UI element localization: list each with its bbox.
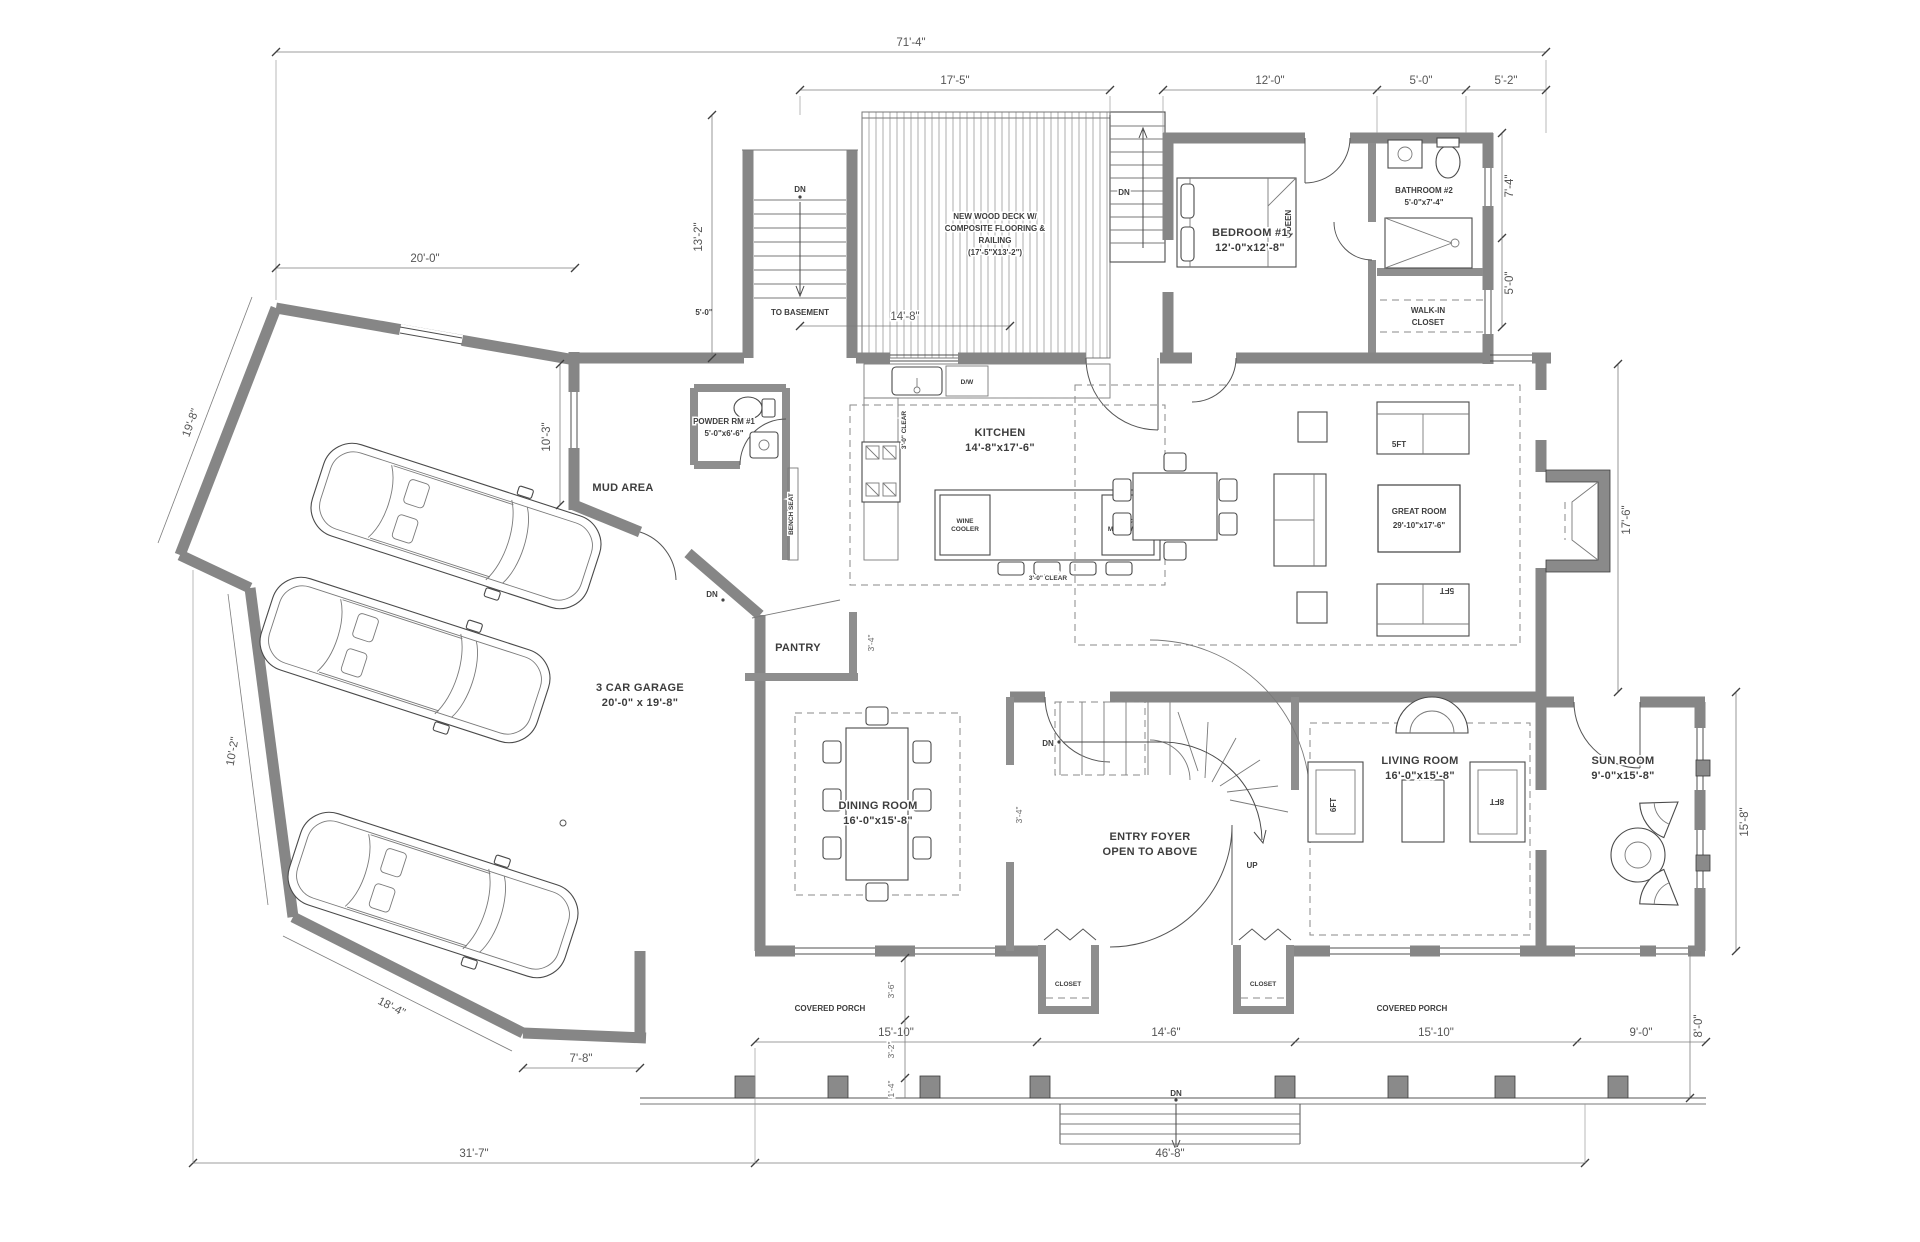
- opening-dim: 3'-4": [1014, 807, 1024, 824]
- garage-entry-dn: DN: [706, 590, 718, 599]
- powder-size: 5'-0"x6'-6": [705, 429, 744, 438]
- svg-text:COMPOSITE FLOORING &: COMPOSITE FLOORING &: [945, 224, 1046, 233]
- foyer-l1: ENTRY FOYER: [1110, 831, 1191, 843]
- dim-garage-door: 18'-4": [376, 995, 408, 1019]
- foyer-dn-label: DN: [1042, 739, 1054, 748]
- dim-porch-left: 15'-10": [878, 1027, 914, 1039]
- pantry-name: PANTRY: [775, 642, 821, 654]
- bedroom1-size: 12'-0"x12'-8": [1215, 242, 1285, 254]
- garage: 3 CAR GARAGE 20'-0" x 19'-8": [249, 426, 684, 995]
- dim-garage-lower: 10'-2": [225, 736, 242, 767]
- clear-dim-h: 3'-0" CLEAR: [1029, 575, 1068, 582]
- dim-garage-side: 19'-8": [181, 407, 202, 439]
- dim-great-h: 17'-6": [1621, 505, 1633, 534]
- living-room: 6FT 8FT LIVING ROOM 16'-0"x15'-8": [1308, 697, 1530, 935]
- dim-closet-h: 5'-0": [1504, 272, 1516, 295]
- garage-size: 20'-0" x 19'-8": [602, 697, 678, 709]
- dim-porch-depth: 8'-0": [1693, 1015, 1705, 1038]
- bedroom1-name: BEDROOM #1: [1212, 227, 1288, 239]
- dim-overall-top: 71'-4": [896, 37, 925, 49]
- svg-text:(17'-5"X13'-2"): (17'-5"X13'-2"): [968, 248, 1022, 257]
- garage-car-3: [277, 795, 589, 995]
- dim-deck-w: 17'-5": [940, 75, 969, 87]
- dim-porch-ext: 9'-0": [1630, 1027, 1653, 1039]
- porches: COVERED PORCH COVERED PORCH CLOSET CLOSE…: [640, 981, 1706, 1150]
- dim-garage-top: 20'-0": [410, 253, 439, 265]
- walkin-l1: WALK-IN: [1411, 306, 1445, 315]
- mud-area-name: MUD AREA: [592, 482, 653, 494]
- sun-size: 9'-0"x15'-8": [1591, 770, 1654, 782]
- foyer-up-label: UP: [1246, 861, 1258, 870]
- sofa-6ft-label: 6FT: [1329, 798, 1338, 812]
- floor-plan-page: DN DN NEW WOOD DECK W/ COMPOSITE FLOORIN…: [0, 0, 1920, 1242]
- closet-left-name: CLOSET: [1055, 981, 1081, 988]
- wine-cooler-l1: WINE: [957, 518, 975, 525]
- foyer-l2: OPEN TO ABOVE: [1103, 846, 1198, 858]
- dim-offset-r: 5'-2": [1495, 75, 1518, 87]
- bedroom-wing: QUEEN BEDROOM #1 12'-0"x12'-8" BATHROOM …: [1177, 138, 1483, 332]
- dim-3-6: 3'-6": [886, 982, 896, 999]
- garage-name: 3 CAR GARAGE: [596, 682, 684, 694]
- dining-room: DINING ROOM 16'-0"x15'-8" 3'-4": [795, 707, 1024, 901]
- dim-corner: 7'-8": [570, 1053, 593, 1065]
- living-size: 16'-0"x15'-8": [1385, 770, 1455, 782]
- powder-name: POWDER RM #1: [693, 417, 755, 426]
- dim-porch-right: 15'-10": [1418, 1027, 1454, 1039]
- bench-seat-label: BENCH SEAT: [788, 493, 795, 535]
- basement-stair-dn-label: DN: [794, 185, 806, 194]
- dim-deck-h: 13'-2": [693, 222, 705, 251]
- kitchen: D/W WINE COOLER U.C. MICROWAVE KITCHEN 1…: [850, 364, 1165, 585]
- deck-stair-dn-label: DN: [1118, 188, 1130, 197]
- deck-stair: DN: [1110, 112, 1165, 262]
- dim-bedroom-w: 12'-0": [1255, 75, 1284, 87]
- dim-1-4: 1'-4": [886, 1081, 896, 1098]
- great-room-size: 29'-10"x17'-6": [1393, 521, 1446, 530]
- porch-right-name: COVERED PORCH: [1377, 1004, 1448, 1013]
- stair-width-dim: 5'-0": [695, 308, 712, 317]
- wine-cooler-l2: COOLER: [951, 526, 979, 533]
- sofa-5ft-top: 5FT: [1392, 440, 1406, 449]
- curved-stair: [1150, 640, 1310, 812]
- walkin-l2: CLOSET: [1412, 318, 1445, 327]
- dim-front-center: 14'-6": [1151, 1027, 1180, 1039]
- living-name: LIVING ROOM: [1381, 755, 1458, 767]
- sofa-8ft-label: 8FT: [1490, 797, 1504, 806]
- dim-sun-h: 15'-8": [1739, 807, 1751, 836]
- steps-dn-label: DN: [1170, 1089, 1182, 1098]
- dining-name: DINING ROOM: [838, 800, 917, 812]
- dim-deck-lower: 14'-8": [890, 311, 919, 323]
- pantry-clear-dim: 3'-4": [866, 635, 876, 652]
- dim-3-2: 3'-2": [886, 1042, 896, 1059]
- fireplace: [1546, 470, 1610, 572]
- bathroom2-size: 5'-0"x7'-4": [1405, 198, 1444, 207]
- to-basement-label: TO BASEMENT: [771, 308, 829, 317]
- dining-size: 16'-0"x15'-8": [843, 815, 913, 827]
- sun-room: SUN ROOM 9'-0"x15'-8": [1591, 755, 1690, 922]
- sun-name: SUN ROOM: [1592, 755, 1655, 767]
- entry-foyer: DN UP ENTRY FOYER OPEN TO ABOVE: [1042, 640, 1310, 870]
- dim-bottom-left: 31'-7": [459, 1148, 488, 1160]
- floor-plan-canvas: DN DN NEW WOOD DECK W/ COMPOSITE FLOORIN…: [0, 0, 1920, 1242]
- dim-mud-h: 10'-3": [541, 422, 553, 451]
- closet-right-name: CLOSET: [1250, 981, 1276, 988]
- floor-drain: [560, 820, 566, 826]
- svg-text:RAILING: RAILING: [979, 236, 1012, 245]
- great-room-name: GREAT ROOM: [1392, 507, 1447, 516]
- kitchen-size: 14'-8"x17'-6": [965, 442, 1035, 454]
- wood-deck: DN DN NEW WOOD DECK W/ COMPOSITE FLOORIN…: [695, 112, 1165, 358]
- kitchen-name: KITCHEN: [975, 427, 1026, 439]
- porch-left-name: COVERED PORCH: [795, 1004, 866, 1013]
- great-room: 5FT 5FT GREAT ROOM 29'-10"x17'-6": [1075, 385, 1610, 645]
- dim-bath-w: 5'-0": [1410, 75, 1433, 87]
- sofa-5ft-bottom: 5FT: [1440, 586, 1454, 595]
- dim-bath-h: 7'-4": [1504, 175, 1516, 198]
- bathroom2-name: BATHROOM #2: [1395, 186, 1453, 195]
- svg-text:NEW WOOD DECK W/: NEW WOOD DECK W/: [953, 212, 1037, 221]
- clear-dim-v: 3'-0" CLEAR: [901, 411, 908, 450]
- dishwasher-label: D/W: [961, 379, 975, 386]
- dim-bottom-right: 46'-8": [1155, 1148, 1184, 1160]
